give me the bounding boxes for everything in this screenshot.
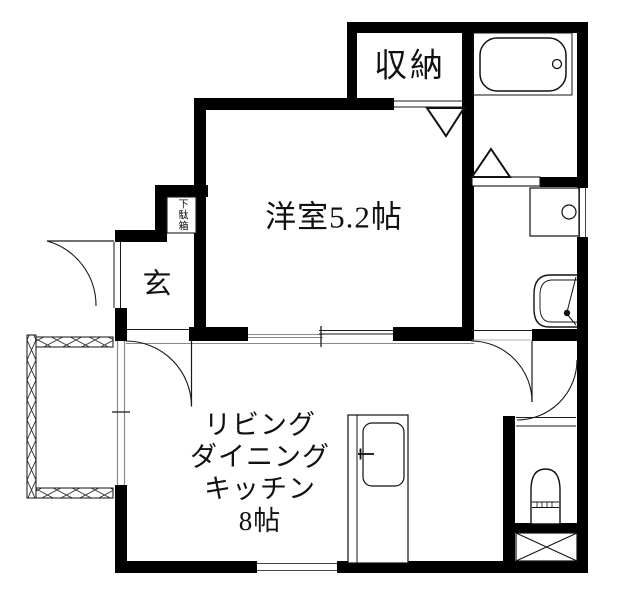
door-swing-arc-icon (126, 341, 192, 407)
bottom-window (257, 564, 337, 571)
wall-bath-south (540, 177, 577, 187)
toilet-icon (531, 469, 560, 524)
ldk-door (126, 330, 474, 407)
ldk-label-line4: 8帖 (190, 505, 330, 537)
balcony-rail (27, 335, 113, 498)
room-label-closet: 収納 (374, 51, 446, 84)
entrance-door (47, 241, 121, 308)
room-label-ldk: リビング ダイニング キッチン 8帖 (190, 409, 330, 537)
folding-door-triangle-icon (427, 108, 464, 136)
wall-west-lower (115, 485, 127, 573)
pipe-space (516, 533, 577, 561)
ldk-label-line2: ダイニング (190, 441, 330, 473)
toilet (531, 469, 560, 524)
bath-door (472, 149, 540, 186)
closet-door (394, 101, 464, 136)
floorplan-canvas: 収納 洋室5.2帖 玄 下駄箱 リビング ダイニング キッチン 8帖 (0, 0, 618, 600)
toilet-door (516, 360, 577, 426)
wall-right-upper (577, 22, 588, 188)
wall-westernroom-north (194, 98, 394, 110)
door-swing-arc-icon (47, 241, 96, 306)
wall-right-lower (577, 237, 588, 573)
washing-machine-pan-icon (530, 188, 579, 236)
wall-ldk-north-east (393, 327, 474, 341)
wall-ldk-north-west (189, 327, 248, 341)
folding-door-triangle-icon (472, 149, 510, 177)
ldk-label-line3: キッチン (190, 473, 330, 505)
door-swing-arc-icon (471, 341, 532, 402)
washroom-door (471, 331, 532, 403)
faucet-knob-icon (553, 60, 562, 69)
wall-west-nub (115, 308, 127, 341)
wall-bottom-left (115, 561, 257, 573)
kitchen-counter (348, 415, 408, 563)
ldk-label-line1: リビング (190, 409, 330, 441)
washer-pan (530, 188, 579, 236)
wash-basin (534, 275, 577, 327)
wall-toilet-west (503, 416, 515, 567)
room-label-entrance: 玄 (142, 271, 171, 300)
wall-closet-west (347, 22, 357, 110)
room-label-shoe-cabinet: 下駄箱 (176, 199, 186, 232)
west-window (112, 341, 130, 485)
door-swing-arc-icon (517, 360, 577, 420)
wall-washroom-south (532, 329, 588, 341)
bathtub (473, 33, 572, 95)
room-label-western-room: 洋室5.2帖 (265, 202, 403, 233)
